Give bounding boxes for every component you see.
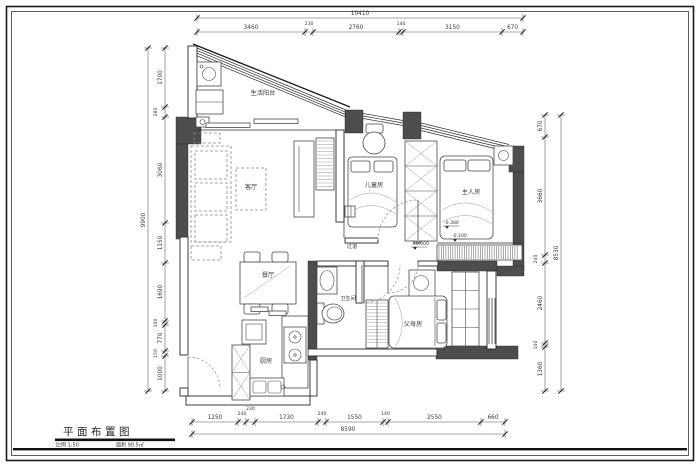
dim-label: 3460 <box>244 25 259 31</box>
dim-label: 1690 <box>158 284 164 299</box>
shoe-cabinet <box>316 138 334 190</box>
parents-room-furniture <box>389 270 447 348</box>
sliding-door-panel <box>269 311 286 316</box>
parents-closet-grid <box>452 272 479 346</box>
area-label: 面积 90.5㎡ <box>116 442 144 449</box>
floor-plan-sheet: 生活阳台 客厅 餐厅 厨房 卫生间 过道 儿童房 主人房 父母房 -0.300 … <box>0 0 700 467</box>
kids-room-label: 儿童房 <box>365 181 384 189</box>
dim-label: 9900 <box>141 212 147 227</box>
title-block: 平面布置图 比例 1:50 面积 90.5㎡ <box>55 426 175 449</box>
balcony-fixtures <box>196 62 298 128</box>
kitchen-tall-cabinet <box>232 345 250 400</box>
parents-room-label: 父母房 <box>404 320 423 328</box>
dim-label: 660 <box>487 415 498 421</box>
kids-table <box>363 132 385 154</box>
floor-plan-canvas: 生活阳台 客厅 餐厅 厨房 卫生间 过道 儿童房 主人房 父母房 -0.300 … <box>0 0 700 467</box>
dim-label: 1550 <box>347 415 362 421</box>
dim-label: 1360 <box>538 361 544 376</box>
scale-label: 比例 1:50 <box>56 442 79 449</box>
kids-room-furniture <box>345 124 397 227</box>
entry-door-arc <box>188 357 220 389</box>
bay-ledge <box>437 245 522 260</box>
dim-label: 240 <box>318 411 327 417</box>
kitchen-label: 厨房 <box>260 357 272 365</box>
dim-label: 230 <box>246 406 255 412</box>
dim-label: 140 <box>397 21 406 27</box>
bathroom-label: 卫生间 <box>340 294 356 302</box>
dim-label: 670 <box>538 120 544 131</box>
level-label: ±0.000 <box>412 241 429 247</box>
nightstand <box>494 146 513 165</box>
dim-label: 100 <box>153 319 159 328</box>
dim-label: 8590 <box>341 427 356 433</box>
fridge <box>242 320 266 344</box>
hallway-label: 过道 <box>347 242 357 250</box>
dim-label: 2550 <box>427 415 442 421</box>
sofa <box>191 146 231 242</box>
tv-cabinet <box>294 141 314 217</box>
living-label: 客厅 <box>245 183 257 191</box>
dim-label: 3060 <box>158 162 164 177</box>
dim-label: 280 <box>153 108 159 117</box>
dining-label: 餐厅 <box>262 271 274 279</box>
dim-label: 2760 <box>349 25 364 31</box>
dim-label: 2460 <box>538 295 544 310</box>
dim-label: 230 <box>305 21 314 27</box>
stove <box>284 327 306 363</box>
desk <box>409 270 435 297</box>
dim-label: 1150 <box>158 235 164 250</box>
sliding-door-panel <box>251 307 268 312</box>
dining-furniture <box>240 252 296 316</box>
master-wardrobe <box>405 141 437 241</box>
dim-label: 140 <box>533 341 539 350</box>
nightstand <box>345 206 355 217</box>
kitchen-fixtures <box>242 316 308 396</box>
dim-label: 770 <box>158 332 164 343</box>
dim-label: 140 <box>381 411 390 417</box>
dim-label: 1730 <box>279 415 294 421</box>
sheet-frame <box>7 7 694 461</box>
dim-label: 670 <box>507 25 518 31</box>
sheet-bottom-rule <box>13 448 687 450</box>
dim-label: 8530 <box>554 245 560 260</box>
dim-label: 3150 <box>445 25 460 31</box>
dining-table <box>240 262 296 304</box>
sliding-door-panel <box>206 123 250 128</box>
sheet-title: 平面布置图 <box>63 426 133 438</box>
balcony-label: 生活阳台 <box>251 89 276 97</box>
dim-label: 1700 <box>158 70 164 85</box>
level-label: -0.100 <box>452 233 467 239</box>
title-underline <box>55 439 175 442</box>
dim-label: 240 <box>533 255 539 264</box>
chair <box>272 252 288 262</box>
master-room-label: 主人房 <box>462 188 481 196</box>
dim-label: 1000 <box>158 366 164 381</box>
dim-label: 150 <box>153 349 159 358</box>
sliding-door-panel <box>254 119 298 124</box>
dim-label: 10410 <box>351 11 370 17</box>
dim-label: 3660 <box>538 188 544 203</box>
level-label: -0.300 <box>444 220 459 226</box>
living-room-furniture <box>191 133 314 260</box>
dim-label: 1250 <box>208 415 223 421</box>
chair <box>244 252 260 262</box>
